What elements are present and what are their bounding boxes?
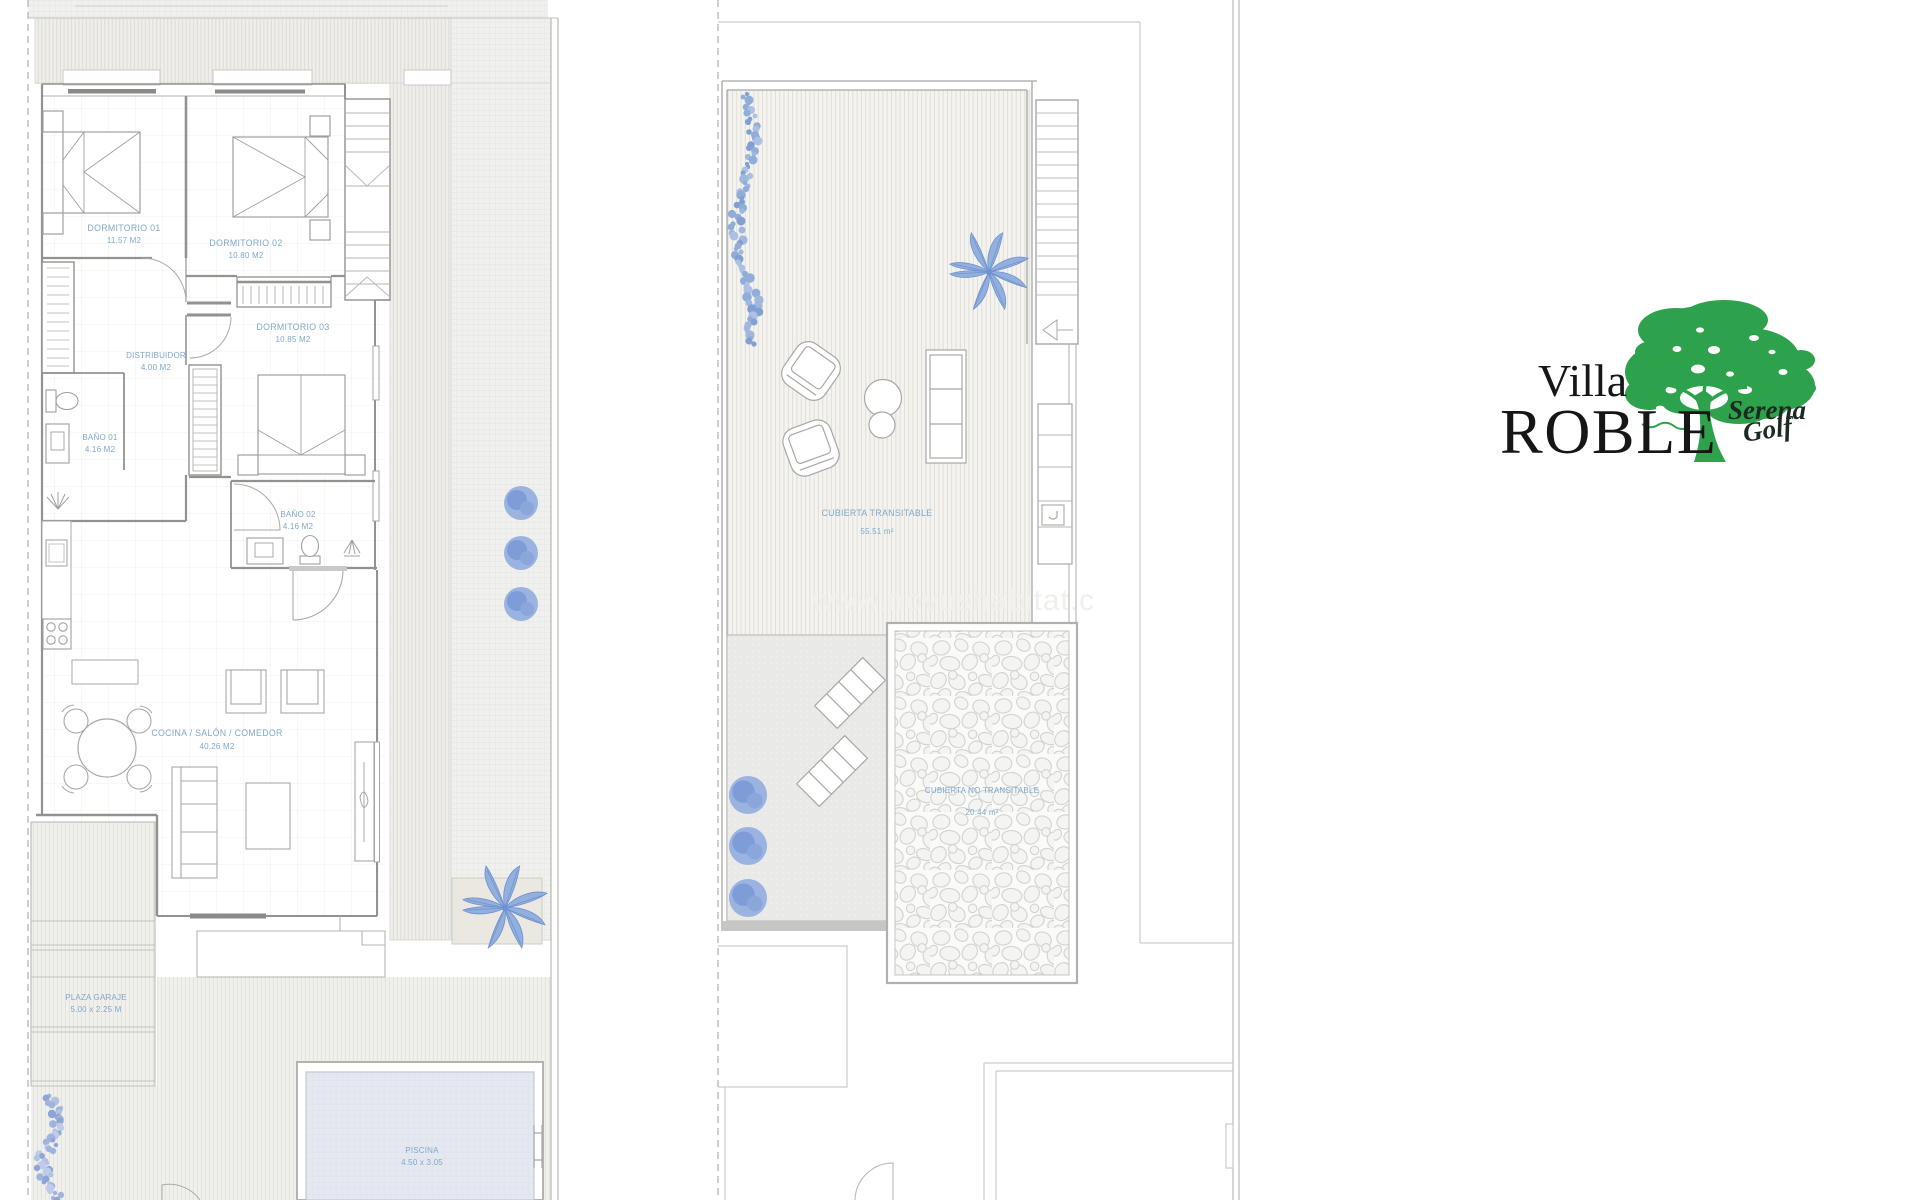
svg-text:10.80 M2: 10.80 M2 (229, 251, 264, 260)
svg-text:PLAZA GARAJE: PLAZA GARAJE (65, 993, 127, 1002)
svg-text:DORMITORIO 02: DORMITORIO 02 (209, 238, 282, 248)
svg-text:DISTRIBUIDOR: DISTRIBUIDOR (126, 351, 186, 360)
svg-text:DORMITORIO 01: DORMITORIO 01 (87, 223, 160, 233)
svg-text:5.00 x 2.25 M: 5.00 x 2.25 M (70, 1005, 121, 1014)
svg-text:COCINA / SALÓN / COMEDOR: COCINA / SALÓN / COMEDOR (151, 728, 282, 738)
svg-text:4.16 M2: 4.16 M2 (85, 445, 116, 454)
svg-text:40.26 M2: 40.26 M2 (200, 742, 235, 751)
svg-text:4.50 x 3.05: 4.50 x 3.05 (401, 1158, 443, 1167)
svg-text:DORMITORIO 03: DORMITORIO 03 (256, 322, 329, 332)
svg-text:CUBIERTA NO TRANSITABLE: CUBIERTA NO TRANSITABLE (925, 786, 1039, 795)
svg-text:BAÑO 02: BAÑO 02 (280, 510, 316, 519)
svg-text:11.57 M2: 11.57 M2 (107, 236, 142, 245)
svg-text:10.85 M2: 10.85 M2 (276, 335, 311, 344)
svg-text:55.51 m²: 55.51 m² (860, 527, 893, 536)
svg-text:ROBLE: ROBLE (1500, 396, 1717, 467)
svg-text:4.16 M2: 4.16 M2 (283, 522, 314, 531)
svg-text:BAÑO 01: BAÑO 01 (82, 433, 118, 442)
svg-text:20.44 m²: 20.44 m² (965, 808, 998, 817)
svg-text:4.00 M2: 4.00 M2 (141, 363, 172, 372)
svg-text:CUBIERTA TRANSITABLE: CUBIERTA TRANSITABLE (822, 508, 933, 518)
svg-text:PISCINA: PISCINA (405, 1146, 439, 1155)
svg-text:www.novushabitat.c: www.novushabitat.c (811, 584, 1095, 617)
